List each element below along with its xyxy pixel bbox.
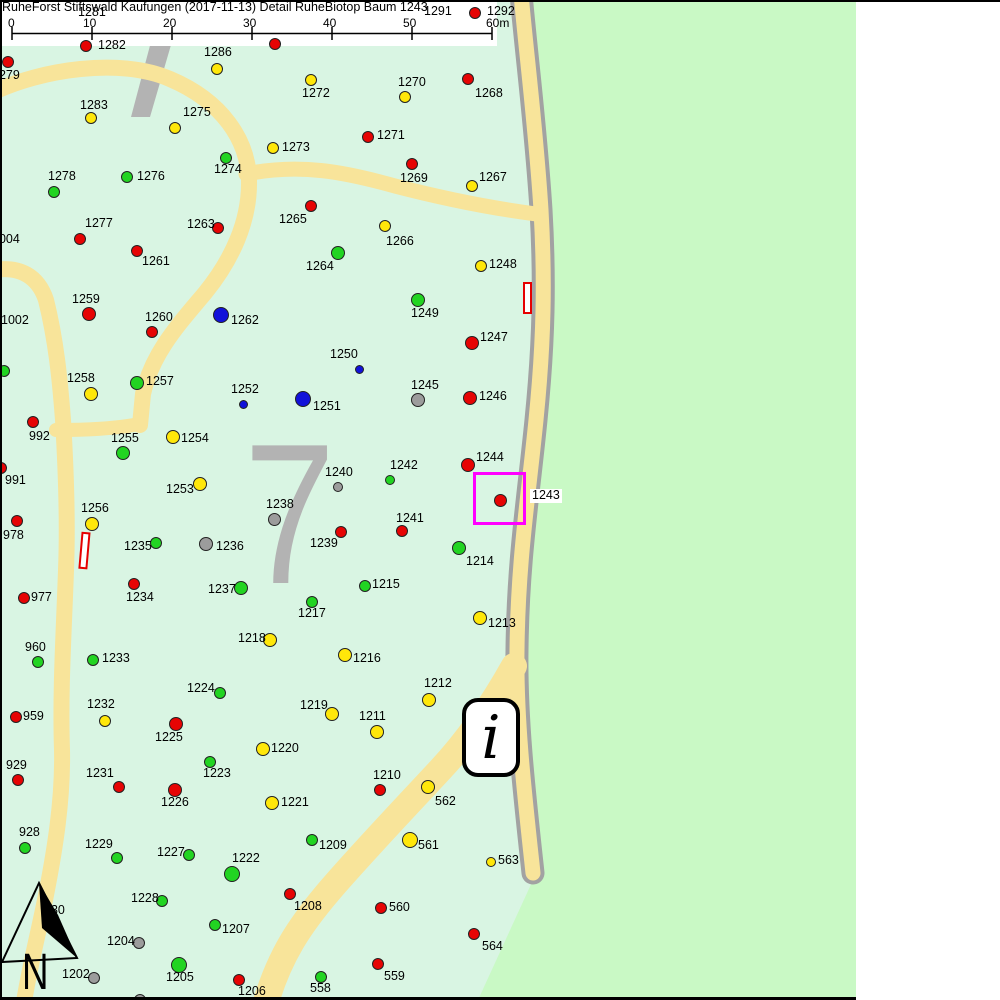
tree-label-978: 978 — [3, 529, 24, 542]
tree-marker-1260[interactable] — [146, 326, 158, 338]
tree-marker-1277[interactable] — [74, 233, 86, 245]
tree-marker-1271[interactable] — [362, 131, 374, 143]
tree-marker-928[interactable] — [19, 842, 31, 854]
tree-label-1214: 1214 — [466, 555, 494, 568]
tree-label-1258: 1258 — [67, 372, 95, 385]
tree-label-1252: 1252 — [231, 383, 259, 396]
tree-label-1205: 1205 — [166, 971, 194, 984]
tree-label-1004: 1004 — [0, 233, 20, 246]
north-letter: N — [22, 948, 49, 996]
tree-label-1271: 1271 — [377, 129, 405, 142]
tree-marker-1258[interactable] — [84, 387, 98, 401]
tree-marker-563[interactable] — [486, 857, 496, 867]
tree-marker-1270[interactable] — [399, 91, 411, 103]
tree-label-1255: 1255 — [111, 432, 139, 445]
tree-marker-1262[interactable] — [213, 307, 229, 323]
tree-marker-1256[interactable] — [85, 517, 99, 531]
tree-label-1276: 1276 — [137, 170, 165, 183]
tree-label-1292: 1292 — [487, 5, 515, 18]
tree-marker-1237[interactable] — [234, 581, 248, 595]
tree-label-1253: 1253 — [166, 483, 194, 496]
tree-marker-1212[interactable] — [422, 693, 436, 707]
window-border-top — [0, 0, 1000, 2]
tree-marker-1254[interactable] — [166, 430, 180, 444]
tree-label-1210: 1210 — [373, 769, 401, 782]
tree-marker-1283[interactable] — [85, 112, 97, 124]
tree-label-977: 977 — [31, 591, 52, 604]
tree-marker-564[interactable] — [468, 928, 480, 940]
tree-marker-559[interactable] — [372, 958, 384, 970]
tree-marker-960[interactable] — [32, 656, 44, 668]
tree-label-1225: 1225 — [155, 731, 183, 744]
tree-label-1286: 1286 — [204, 46, 232, 59]
tree-marker-1292[interactable] — [469, 7, 481, 19]
tree-label-1249: 1249 — [411, 307, 439, 320]
tree-label-1262: 1262 — [231, 314, 259, 327]
tree-label-1277: 1277 — [85, 217, 113, 230]
scale-label-50: 50 — [403, 16, 416, 30]
tree-label-1220: 1220 — [271, 742, 299, 755]
tree-label-1232: 1232 — [87, 698, 115, 711]
compartment-number: 7 — [244, 415, 335, 615]
tree-marker-1236[interactable] — [199, 537, 213, 551]
tree-label-1002: 1002 — [1, 314, 29, 327]
tree-label-1266: 1266 — [386, 235, 414, 248]
tree-marker-1225[interactable] — [169, 717, 183, 731]
scale-label-60m: 60m — [486, 16, 509, 30]
tree-marker-1249[interactable] — [411, 293, 425, 307]
tree-label-1236: 1236 — [216, 540, 244, 553]
tree-label-1217: 1217 — [298, 607, 326, 620]
tree-marker-1215[interactable] — [359, 580, 371, 592]
tree-label-1273: 1273 — [282, 141, 310, 154]
tree-marker-1282[interactable] — [80, 40, 92, 52]
tree-label-1254: 1254 — [181, 432, 209, 445]
tree-label-992: 992 — [29, 430, 50, 443]
tree-label-1219: 1219 — [300, 699, 328, 712]
tree-marker-1244[interactable] — [461, 458, 475, 472]
tree-marker-1231[interactable] — [113, 781, 125, 793]
tree-marker-1269[interactable] — [406, 158, 418, 170]
tree-marker-1224[interactable] — [214, 687, 226, 699]
tree-marker-1267[interactable] — [466, 180, 478, 192]
tree-marker-1251[interactable] — [295, 391, 311, 407]
tree-label-1221: 1221 — [281, 796, 309, 809]
red-marker-post-east — [524, 283, 531, 313]
tree-marker-1246[interactable] — [463, 391, 477, 405]
tree-label-563: 563 — [498, 854, 519, 867]
forest-map[interactable]: 7 12811291129212871282128612791283127212… — [0, 0, 856, 1000]
tree-marker-978[interactable] — [11, 515, 23, 527]
tree-marker-1241[interactable] — [396, 525, 408, 537]
tree-label-1257: 1257 — [146, 375, 174, 388]
tree-label-959: 959 — [23, 710, 44, 723]
tree-marker-1273[interactable] — [267, 142, 279, 154]
tree-label-1228: 1228 — [131, 892, 159, 905]
tree-marker-1286[interactable] — [211, 63, 223, 75]
tree-label-1207: 1207 — [222, 923, 250, 936]
scale-label-30: 30 — [243, 16, 256, 30]
tree-marker-1245[interactable] — [411, 393, 425, 407]
tree-label-1246: 1246 — [479, 390, 507, 403]
tree-marker-561[interactable] — [402, 832, 418, 848]
tree-label-928: 928 — [19, 826, 40, 839]
tree-label-1216: 1216 — [353, 652, 381, 665]
selected-tree-highlight-box — [473, 472, 526, 525]
tree-marker-1253[interactable] — [193, 477, 207, 491]
tree-marker-1278[interactable] — [48, 186, 60, 198]
tree-label-1234: 1234 — [126, 591, 154, 604]
tree-label-1223: 1223 — [203, 767, 231, 780]
scale-label-40: 40 — [323, 16, 336, 30]
tree-marker-1255[interactable] — [116, 446, 130, 460]
tree-label-561: 561 — [418, 839, 439, 852]
tree-label-559: 559 — [384, 970, 405, 983]
tree-marker-977[interactable] — [18, 592, 30, 604]
tree-marker-1257[interactable] — [130, 376, 144, 390]
tree-marker-1214[interactable] — [452, 541, 466, 555]
tree-label-1260: 1260 — [145, 311, 173, 324]
tree-marker-560[interactable] — [375, 902, 387, 914]
tree-marker-1234[interactable] — [128, 578, 140, 590]
tree-label-564: 564 — [482, 940, 503, 953]
map-viewer-window: 7 12811291129212871282128612791283127212… — [0, 0, 1000, 1000]
tree-marker-1272[interactable] — [305, 74, 317, 86]
tree-label-1218: 1218 — [238, 632, 266, 645]
tree-label-1242: 1242 — [390, 459, 418, 472]
tree-label-1215: 1215 — [372, 578, 400, 591]
tree-marker-1220[interactable] — [256, 742, 270, 756]
tree-label-1291: 1291 — [424, 5, 452, 18]
tree-label-1264: 1264 — [306, 260, 334, 273]
tree-label-1263: 1263 — [187, 218, 215, 231]
tree-label-1237: 1237 — [208, 583, 236, 596]
tree-label-1204: 1204 — [107, 935, 135, 948]
tree-label-1212: 1212 — [424, 677, 452, 690]
tree-label-1247: 1247 — [480, 331, 508, 344]
tree-marker-1209[interactable] — [306, 834, 318, 846]
tree-marker-1233[interactable] — [87, 654, 99, 666]
tree-marker-1240[interactable] — [333, 482, 343, 492]
tree-label-960: 960 — [25, 641, 46, 654]
tree-label-1274: 1274 — [214, 163, 242, 176]
tree-marker-1276[interactable] — [121, 171, 133, 183]
tree-marker-1265[interactable] — [305, 200, 317, 212]
tree-label-1279: 1279 — [0, 69, 20, 82]
tree-marker-992[interactable] — [27, 416, 39, 428]
tree-label-558: 558 — [310, 982, 331, 995]
tree-label-1224: 1224 — [187, 682, 215, 695]
red-marker-post-west — [79, 533, 89, 568]
tree-marker-1210[interactable] — [374, 784, 386, 796]
tree-label-1243: 1243 — [530, 489, 562, 503]
loop-road — [0, 68, 249, 425]
tree-label-1268: 1268 — [475, 87, 503, 100]
tree-label-1244: 1244 — [476, 451, 504, 464]
tree-label-1241: 1241 — [396, 512, 424, 525]
tree-label-1229: 1229 — [85, 838, 113, 851]
scale-label-20: 20 — [163, 16, 176, 30]
tree-label-562: 562 — [435, 795, 456, 808]
tree-marker-1207[interactable] — [209, 919, 221, 931]
tree-label-1259: 1259 — [72, 293, 100, 306]
tree-label-1227: 1227 — [157, 846, 185, 859]
tree-marker-929[interactable] — [12, 774, 24, 786]
tree-marker-1250[interactable] — [355, 365, 364, 374]
tree-label-1233: 1233 — [102, 652, 130, 665]
tree-label-1248: 1248 — [489, 258, 517, 271]
tree-label-1283: 1283 — [80, 99, 108, 112]
tree-label-1275: 1275 — [183, 106, 211, 119]
tree-marker-1213[interactable] — [473, 611, 487, 625]
tree-marker-1279[interactable] — [2, 56, 14, 68]
tree-marker-1259[interactable] — [82, 307, 96, 321]
tree-label-1251: 1251 — [313, 400, 341, 413]
scale-bar: RuheForst Stiftswald Kaufungen (2017-11-… — [0, 0, 497, 46]
tree-label-1272: 1272 — [302, 87, 330, 100]
tree-label-1239: 1239 — [310, 537, 338, 550]
tree-marker-1248[interactable] — [475, 260, 487, 272]
tree-marker-1268[interactable] — [462, 73, 474, 85]
tree-marker-1238[interactable] — [268, 513, 281, 526]
tree-label-1238: 1238 — [266, 498, 294, 511]
tree-label-1240: 1240 — [325, 466, 353, 479]
tree-label-1278: 1278 — [48, 170, 76, 183]
scale-label-0: 0 — [8, 16, 15, 30]
window-border-left — [0, 0, 2, 1000]
tree-label-1222: 1222 — [232, 852, 260, 865]
tree-marker-1232[interactable] — [99, 715, 111, 727]
info-icon[interactable]: i — [462, 698, 520, 777]
tree-label-1269: 1269 — [400, 172, 428, 185]
tree-label-1226: 1226 — [161, 796, 189, 809]
tree-label-1209: 1209 — [319, 839, 347, 852]
tree-marker-1264[interactable] — [331, 246, 345, 260]
tree-label-1265: 1265 — [279, 213, 307, 226]
tree-label-1261: 1261 — [142, 255, 170, 268]
tree-label-1213: 1213 — [488, 617, 516, 630]
tree-label-1281: 1281 — [78, 6, 106, 19]
tree-label-1245: 1245 — [411, 379, 439, 392]
tree-marker-1221[interactable] — [265, 796, 279, 810]
tree-label-1267: 1267 — [479, 171, 507, 184]
tree-marker-1222[interactable] — [224, 866, 240, 882]
tree-label-929: 929 — [6, 759, 27, 772]
tree-label-1256: 1256 — [81, 502, 109, 515]
tree-label-560: 560 — [389, 901, 410, 914]
tree-marker-1211[interactable] — [370, 725, 384, 739]
tree-marker-1266[interactable] — [379, 220, 391, 232]
tree-marker-1216[interactable] — [338, 648, 352, 662]
tree-label-1211: 1211 — [359, 710, 386, 723]
info-icon-glyph: i — [481, 703, 500, 773]
tree-marker-1242[interactable] — [385, 475, 395, 485]
tree-label-1250: 1250 — [330, 348, 358, 361]
tree-label-1208: 1208 — [294, 900, 322, 913]
tree-marker-1252[interactable] — [239, 400, 248, 409]
tree-label-1235: 1235 — [124, 540, 152, 553]
tree-label-1231: 1231 — [86, 767, 114, 780]
tree-label-991: 991 — [5, 474, 26, 487]
tree-marker-562[interactable] — [421, 780, 435, 794]
tree-label-1282: 1282 — [98, 39, 126, 52]
tree-label-1270: 1270 — [398, 76, 426, 89]
tree-marker-959[interactable] — [10, 711, 22, 723]
tree-marker-1247[interactable] — [465, 336, 479, 350]
tree-marker-1275[interactable] — [169, 122, 181, 134]
tree-marker-1287[interactable] — [269, 38, 281, 50]
right-blank-panel — [856, 0, 1000, 1000]
tree-marker-1229[interactable] — [111, 852, 123, 864]
